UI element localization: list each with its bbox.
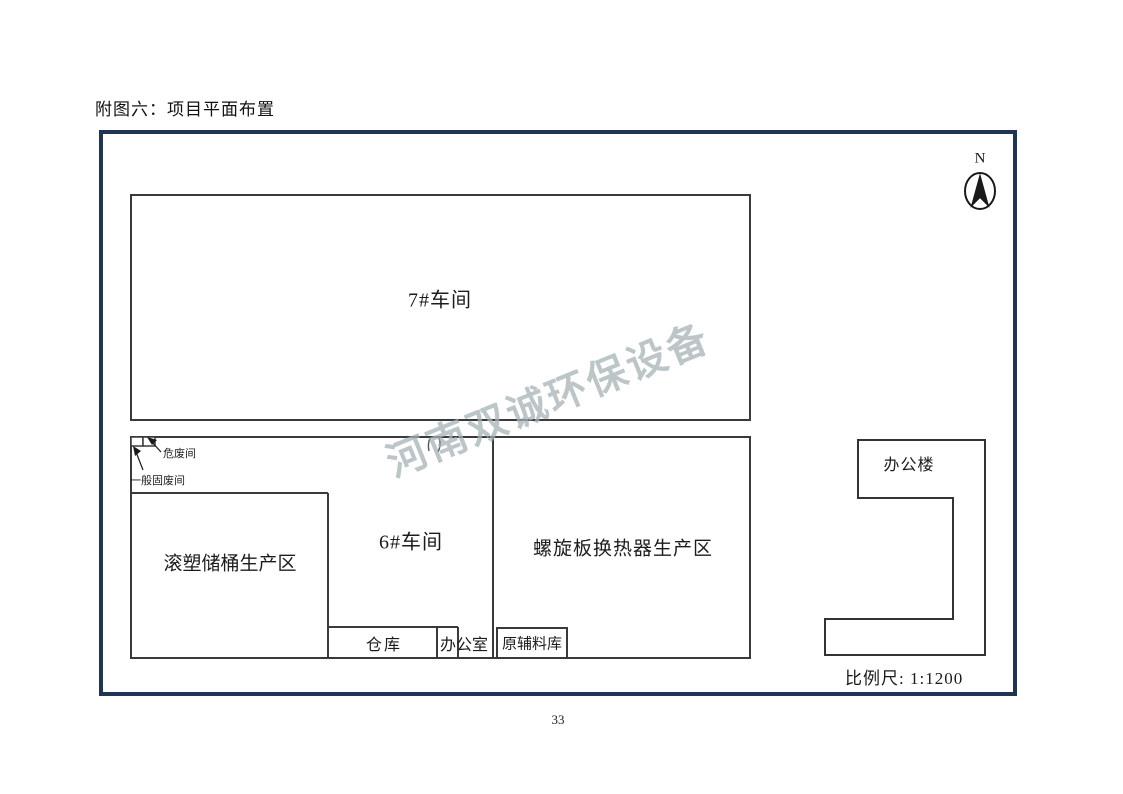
- hazardous-waste-label: 危废间: [163, 445, 196, 461]
- workshop7-label: 7#车间: [408, 284, 472, 313]
- north-n-label: N: [975, 151, 986, 168]
- page-title: 附图六：项目平面布置: [95, 95, 275, 120]
- workshop6-label: 6#车间: [379, 526, 443, 555]
- spiral-area-label: 螺旋板换热器生产区: [533, 534, 713, 561]
- site-plan-canvas: 河南双诚环保设备 7#车间 6#车间 滚塑储桶生产区 螺旋板换热器生产区 仓库 …: [103, 134, 1013, 692]
- general-waste-label: 一般固废间: [130, 472, 185, 488]
- warehouse-label: 仓库: [366, 631, 402, 655]
- office-room-label: 办公室: [440, 631, 488, 655]
- raw-material-label: 原辅料库: [502, 633, 562, 654]
- office-building-label: 办公楼: [883, 451, 934, 475]
- scale-label: 比例尺: 1:1200: [845, 664, 963, 689]
- general-waste-room-outline: [131, 437, 143, 446]
- north-needle-icon: [972, 175, 989, 206]
- rotomolding-area-label: 滚塑储桶生产区: [163, 549, 296, 576]
- site-plan-lines: [103, 134, 1013, 692]
- site-plan-frame: 河南双诚环保设备 7#车间 6#车间 滚塑储桶生产区 螺旋板换热器生产区 仓库 …: [99, 130, 1017, 696]
- page-number: 33: [548, 712, 568, 728]
- document-page: { "page": { "title": "附图六：项目平面布置", "page…: [0, 0, 1123, 794]
